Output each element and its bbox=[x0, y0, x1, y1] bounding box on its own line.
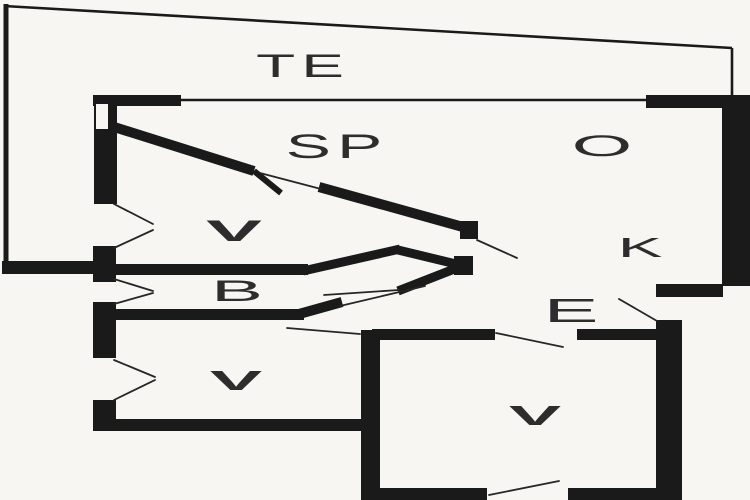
room-label-terrace: TE bbox=[256, 48, 350, 84]
b-corridor-bottom-wall bbox=[114, 309, 304, 320]
hatch-left-opening1-a bbox=[114, 204, 153, 224]
swing-bottomright-top-door bbox=[496, 333, 563, 347]
bottomright-room-left-wall bbox=[361, 330, 380, 500]
floor-plan-canvas: TE SP O K B E V V V bbox=[0, 0, 750, 500]
right-wall-upper bbox=[722, 104, 750, 286]
e-hall-bottom-wall-left bbox=[372, 329, 495, 340]
swing-bottom-door bbox=[489, 481, 559, 495]
swing-bottomleft-door bbox=[287, 328, 360, 334]
hatch-left-opening3-b bbox=[114, 380, 155, 400]
floor-plan: TE SP O K B E V V V bbox=[0, 0, 750, 500]
room-label-o: O bbox=[572, 129, 633, 163]
upper-diagonal-wall-2 bbox=[319, 187, 463, 227]
apex-door-jamb-lower bbox=[454, 256, 473, 275]
e-hall-bottom-wall-right bbox=[577, 329, 657, 340]
bottom-wall-left-segment bbox=[377, 488, 487, 500]
swing-e-hall-door bbox=[619, 299, 657, 321]
v-mark-bottomleft-room: V bbox=[210, 365, 262, 396]
hatch-left-opening3-a bbox=[114, 360, 155, 377]
right-step-wall bbox=[656, 284, 723, 297]
triangle-room-bottom-wall bbox=[93, 264, 308, 275]
right-wall-lower bbox=[656, 320, 682, 500]
lower-diagonal-wall-2 bbox=[398, 250, 456, 264]
bottom-wall-right-segment bbox=[568, 488, 682, 500]
terrace-bottom-wall bbox=[2, 261, 93, 274]
room-label-e: E bbox=[543, 293, 598, 330]
room-label-b: B bbox=[211, 274, 263, 308]
swing-hall-2 bbox=[340, 286, 425, 306]
v-mark-triangle-room: V bbox=[206, 214, 262, 247]
hatch-left-opening2-a bbox=[114, 279, 153, 291]
apex-door-jamb-upper bbox=[460, 221, 478, 239]
upper-diagonal-wall-1 bbox=[111, 126, 254, 171]
hatch-left-opening2-b bbox=[114, 293, 153, 304]
room-label-sp: SP bbox=[286, 128, 389, 166]
lower-diagonal-wall-3 bbox=[398, 266, 462, 291]
hatch-left-opening1-b bbox=[114, 230, 153, 248]
bottomleft-room-bottom-wall bbox=[93, 419, 368, 431]
room-labels: TE SP O K B E V V V bbox=[206, 48, 662, 431]
left-wall-mid-2 bbox=[93, 302, 116, 358]
v-mark-bottomright-room: V bbox=[509, 400, 561, 431]
lower-diagonal-wall-1 bbox=[303, 249, 400, 271]
room-label-k: K bbox=[618, 231, 663, 263]
b-corridor-diagonal bbox=[299, 302, 342, 314]
swing-apex-door bbox=[477, 240, 517, 258]
terrace-top-slant bbox=[4, 6, 732, 48]
left-wall-window-notch bbox=[96, 104, 108, 129]
